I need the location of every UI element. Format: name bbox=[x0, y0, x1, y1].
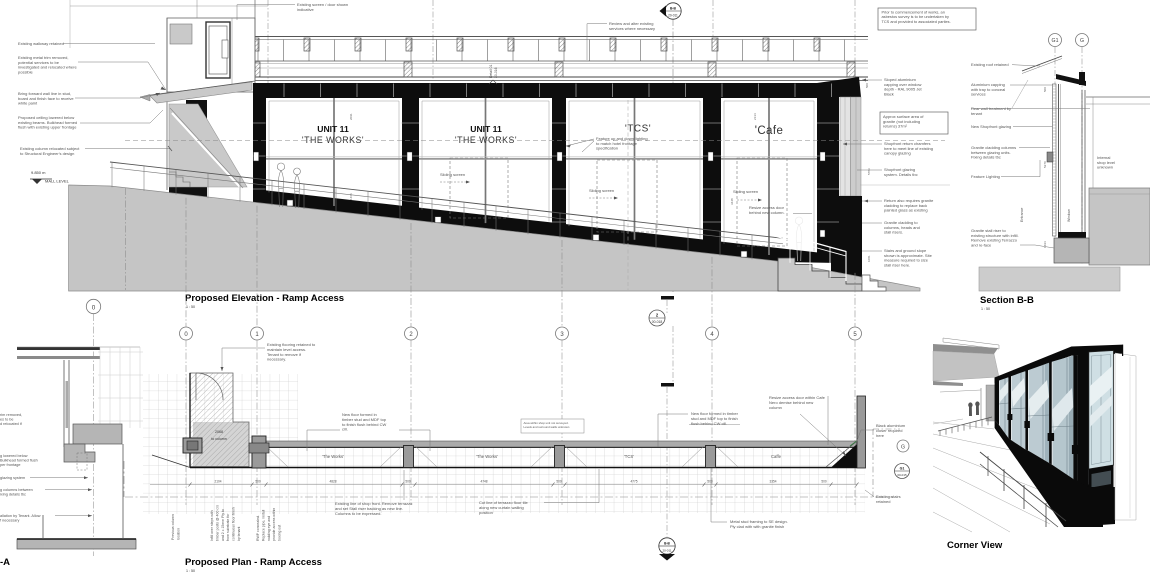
svg-text:Detail 01: Detail 01 bbox=[489, 65, 493, 78]
svg-text:timber posts @ 400 crs: timber posts @ 400 crs bbox=[215, 505, 219, 541]
svg-text:rodding eye and: rodding eye and bbox=[267, 516, 271, 541]
svg-text:Columns to be expressed.: Columns to be expressed. bbox=[335, 511, 381, 516]
svg-text:New Shopfront glazing: New Shopfront glazing bbox=[971, 124, 1011, 129]
svg-text:ixing details tbc: ixing details tbc bbox=[0, 493, 26, 497]
svg-text:unknown: unknown bbox=[1097, 165, 1113, 170]
svg-text:to column: to column bbox=[211, 437, 227, 441]
svg-text:UNIT 11: UNIT 11 bbox=[470, 124, 502, 134]
svg-text:cill.: cill. bbox=[342, 427, 348, 432]
svg-text:Proposed Plan - Ramp Access: Proposed Plan - Ramp Access bbox=[185, 557, 322, 568]
svg-text:position: position bbox=[479, 510, 493, 515]
svg-text:MALL LEVEL: MALL LEVEL bbox=[45, 179, 70, 184]
svg-text:Replace pipe, install: Replace pipe, install bbox=[261, 509, 265, 541]
svg-text:Sliding screen: Sliding screen bbox=[589, 188, 614, 193]
svg-text:Feature Lighting: Feature Lighting bbox=[971, 174, 1000, 179]
svg-text:Caffe: Caffe bbox=[771, 454, 782, 459]
svg-text:9.850 m: 9.850 m bbox=[31, 170, 46, 175]
svg-text:Entrance: Entrance bbox=[1020, 208, 1024, 222]
svg-text:services: services bbox=[971, 92, 986, 97]
svg-text:Sliding screen: Sliding screen bbox=[440, 172, 465, 177]
svg-text:G1: G1 bbox=[900, 467, 905, 471]
svg-text:and re-face: and re-face bbox=[971, 242, 992, 247]
svg-text:flush behind CW cill.: flush behind CW cill. bbox=[691, 421, 727, 426]
svg-text:'THE WORKS': 'THE WORKS' bbox=[455, 135, 517, 145]
svg-text:1465: 1465 bbox=[349, 193, 353, 200]
svg-text:Corner View: Corner View bbox=[947, 540, 1003, 551]
svg-text:Levels and surround walls unkn: Levels and surround walls unknown bbox=[524, 425, 570, 429]
svg-text:3354: 3354 bbox=[769, 480, 776, 484]
svg-text:here: here bbox=[876, 433, 885, 438]
svg-text:2104: 2104 bbox=[214, 480, 221, 484]
svg-text:system. Details tbc: system. Details tbc bbox=[884, 172, 918, 177]
svg-text:2134: 2134 bbox=[753, 113, 757, 120]
svg-text:column: column bbox=[769, 405, 782, 410]
svg-text:500: 500 bbox=[1043, 87, 1047, 92]
svg-text:Section B-B: Section B-B bbox=[980, 295, 1034, 306]
svg-text:Existing roof retained: Existing roof retained bbox=[971, 62, 1009, 67]
svg-text:4828: 4828 bbox=[329, 480, 336, 484]
svg-text:by tenant: by tenant bbox=[237, 527, 241, 541]
svg-text:00-018: 00-018 bbox=[652, 320, 663, 324]
svg-text:G: G bbox=[901, 444, 905, 450]
svg-text:from substrate for: from substrate for bbox=[226, 513, 230, 541]
svg-text:Black: Black bbox=[884, 91, 894, 96]
svg-text:'Cafe: 'Cafe bbox=[755, 125, 784, 137]
svg-text:500: 500 bbox=[707, 480, 713, 484]
svg-text:500: 500 bbox=[865, 83, 869, 88]
svg-text:tenant: tenant bbox=[971, 111, 983, 116]
svg-text:flush with existing upper fron: flush with existing upper frontage bbox=[18, 125, 77, 130]
svg-text:Previous column: Previous column bbox=[171, 514, 175, 540]
svg-text:d relocated if: d relocated if bbox=[0, 422, 23, 426]
svg-text:2091: 2091 bbox=[349, 113, 353, 120]
svg-text:-A: -A bbox=[0, 557, 10, 568]
svg-text:Ply clad with with granite fin: Ply clad with with granite finish bbox=[730, 524, 784, 529]
svg-text:behind new column.: behind new column. bbox=[749, 210, 785, 215]
svg-text:'The Works': 'The Works' bbox=[322, 454, 344, 459]
svg-text:necessary.: necessary. bbox=[267, 357, 286, 362]
svg-text:continuous floor finish: continuous floor finish bbox=[232, 507, 236, 541]
svg-text:allation by Tenant. Allow: allation by Tenant. Allow bbox=[0, 514, 41, 518]
svg-text:UNIT 11: UNIT 11 bbox=[317, 124, 349, 134]
svg-text:returns) 37m²: returns) 37m² bbox=[883, 124, 908, 129]
svg-text:g columns between: g columns between bbox=[0, 488, 33, 492]
svg-text:'TCS': 'TCS' bbox=[624, 454, 634, 459]
svg-text:20-016: 20-016 bbox=[494, 67, 498, 78]
svg-text:5783: 5783 bbox=[867, 168, 871, 175]
svg-text:per frontage: per frontage bbox=[0, 463, 20, 467]
svg-text:G: G bbox=[1080, 38, 1084, 44]
svg-text:Proposed Elevation - Ramp Acce: Proposed Elevation - Ramp Access bbox=[185, 293, 344, 304]
svg-text:'THE WORKS': 'THE WORKS' bbox=[302, 135, 364, 145]
svg-text:stall riser here.: stall riser here. bbox=[884, 262, 910, 267]
svg-text:'The Works': 'The Works' bbox=[476, 454, 498, 459]
svg-text:g lowered below: g lowered below bbox=[0, 454, 28, 458]
svg-text:4748: 4748 bbox=[480, 480, 487, 484]
svg-text:500: 500 bbox=[255, 480, 261, 484]
svg-text:G1: G1 bbox=[1052, 38, 1059, 44]
svg-text:0: 0 bbox=[92, 304, 96, 311]
svg-text:4775: 4775 bbox=[630, 480, 637, 484]
svg-text:3448: 3448 bbox=[730, 198, 734, 205]
svg-text:white paint: white paint bbox=[18, 101, 38, 106]
svg-text:boxing out: boxing out bbox=[278, 525, 282, 541]
svg-text:B-B: B-B bbox=[670, 6, 677, 10]
svg-text:1 : 50: 1 : 50 bbox=[186, 569, 195, 573]
svg-text:1 : 50: 1 : 50 bbox=[186, 305, 195, 309]
svg-text:1 : 50: 1 : 50 bbox=[981, 307, 990, 311]
svg-text:and 2 x 15mm Ply to: and 2 x 15mm Ply to bbox=[221, 509, 225, 541]
svg-text:Window: Window bbox=[1067, 209, 1071, 222]
svg-text:glazing system: glazing system bbox=[0, 476, 25, 480]
svg-text:500: 500 bbox=[556, 480, 562, 484]
svg-text:to Structural Engineer's desig: to Structural Engineer's design bbox=[20, 151, 74, 156]
svg-text:f necessary: f necessary bbox=[0, 519, 20, 523]
svg-text:500: 500 bbox=[405, 480, 411, 484]
svg-text:Fixing details tbc: Fixing details tbc bbox=[971, 155, 1001, 160]
svg-text:00-015: 00-015 bbox=[897, 473, 907, 477]
svg-text:canopy glazing: canopy glazing bbox=[884, 151, 911, 156]
svg-text:Sliding screen: Sliding screen bbox=[733, 189, 758, 194]
svg-text:5270: 5270 bbox=[1043, 161, 1047, 168]
svg-text:rim removed,: rim removed, bbox=[0, 413, 22, 417]
svg-text:500: 500 bbox=[821, 480, 827, 484]
svg-text:'TCS': 'TCS' bbox=[625, 124, 651, 135]
svg-text:B-B: B-B bbox=[664, 542, 670, 546]
svg-text:es to be: es to be bbox=[0, 418, 14, 422]
svg-text:provide access within: provide access within bbox=[272, 508, 276, 541]
svg-text:RWP concealed.: RWP concealed. bbox=[256, 515, 260, 541]
svg-text:stall risers.: stall risers. bbox=[884, 230, 903, 235]
svg-text:to finish flush behind CW: to finish flush behind CW bbox=[342, 422, 386, 427]
svg-text:services where necessary: services where necessary bbox=[609, 26, 655, 31]
svg-text:2068: 2068 bbox=[215, 430, 223, 434]
svg-text:1081: 1081 bbox=[867, 255, 871, 262]
svg-text:location: location bbox=[177, 528, 181, 540]
svg-text:20-011: 20-011 bbox=[668, 13, 678, 17]
svg-text:indicative: indicative bbox=[297, 7, 314, 12]
svg-text:TCS and provided to associated: TCS and provided to associated parties. bbox=[882, 19, 951, 24]
svg-text:specification: specification bbox=[596, 146, 618, 151]
svg-text:Existing walkway retained: Existing walkway retained bbox=[18, 41, 64, 46]
svg-text:20-011: 20-011 bbox=[662, 548, 671, 552]
svg-text:Infill over steps with: Infill over steps with bbox=[210, 510, 214, 541]
svg-text:painted glass as existing: painted glass as existing bbox=[884, 208, 928, 213]
svg-text:Bulkhead formed flush: Bulkhead formed flush bbox=[0, 459, 38, 463]
svg-text:retained: retained bbox=[876, 499, 890, 504]
svg-text:possible: possible bbox=[18, 69, 33, 74]
